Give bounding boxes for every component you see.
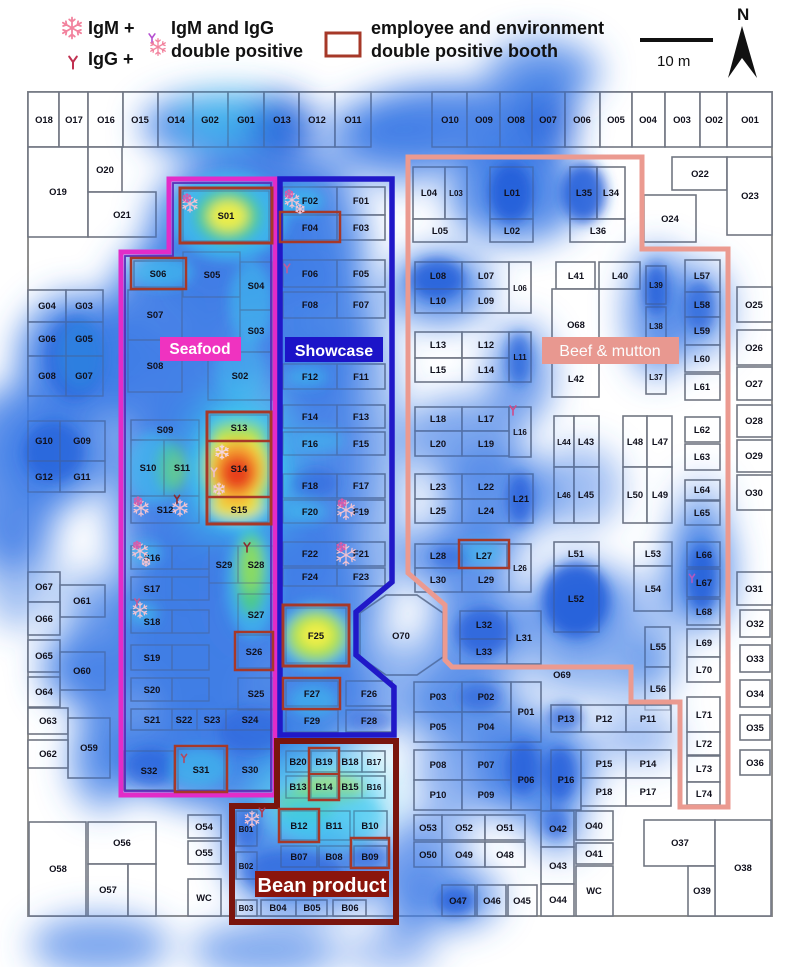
svg-text:WC: WC — [586, 885, 602, 896]
svg-text:O31: O31 — [745, 583, 763, 594]
svg-text:F26: F26 — [361, 688, 377, 699]
svg-text:L63: L63 — [694, 451, 710, 462]
svg-text:B08: B08 — [325, 851, 342, 862]
svg-text:L32: L32 — [476, 619, 492, 630]
svg-text:P03: P03 — [430, 691, 447, 702]
svg-text:L58: L58 — [694, 299, 710, 310]
svg-text:O12: O12 — [308, 114, 326, 125]
svg-text:L48: L48 — [627, 436, 643, 447]
svg-text:O35: O35 — [746, 722, 764, 733]
svg-text:L44: L44 — [557, 438, 571, 447]
svg-text:O60: O60 — [73, 665, 91, 676]
svg-text:double positive: double positive — [171, 41, 303, 61]
svg-text:L40: L40 — [612, 270, 628, 281]
svg-text:S02: S02 — [232, 370, 249, 381]
svg-text:10 m: 10 m — [657, 53, 690, 70]
svg-text:P16: P16 — [558, 774, 575, 785]
svg-text:S11: S11 — [174, 462, 190, 473]
svg-text:F01: F01 — [353, 195, 369, 206]
svg-text:S18: S18 — [144, 616, 161, 627]
svg-text:S13: S13 — [231, 422, 248, 433]
svg-text:S03: S03 — [248, 325, 265, 336]
svg-text:L56: L56 — [650, 683, 666, 694]
svg-text:B12: B12 — [290, 820, 307, 831]
svg-text:L30: L30 — [430, 574, 446, 585]
svg-text:O54: O54 — [195, 821, 214, 832]
svg-text:G10: G10 — [35, 435, 53, 446]
svg-text:L29: L29 — [478, 574, 494, 585]
svg-text:S21: S21 — [144, 714, 161, 725]
svg-text:L08: L08 — [430, 270, 446, 281]
svg-text:S25: S25 — [248, 688, 265, 699]
svg-text:O46: O46 — [483, 895, 501, 906]
svg-text:L73: L73 — [696, 763, 712, 774]
svg-text:L20: L20 — [430, 438, 446, 449]
svg-text:O20: O20 — [96, 164, 114, 175]
svg-text:L74: L74 — [696, 788, 713, 799]
svg-text:L27: L27 — [476, 550, 492, 561]
svg-text:L52: L52 — [568, 593, 584, 604]
svg-text:F24: F24 — [302, 571, 319, 582]
svg-text:L26: L26 — [513, 564, 527, 573]
svg-text:IgM +: IgM + — [88, 18, 135, 38]
svg-text:O32: O32 — [746, 618, 764, 629]
svg-text:F20: F20 — [302, 506, 318, 517]
svg-text:S28: S28 — [248, 559, 265, 570]
svg-text:L25: L25 — [430, 505, 446, 516]
svg-text:L31: L31 — [516, 632, 532, 643]
svg-text:O25: O25 — [745, 299, 763, 310]
svg-text:B19: B19 — [315, 756, 332, 767]
svg-text:B14: B14 — [315, 781, 333, 792]
svg-text:L69: L69 — [696, 637, 712, 648]
svg-text:O27: O27 — [745, 378, 763, 389]
svg-text:O41: O41 — [585, 848, 603, 859]
svg-text:O56: O56 — [113, 837, 131, 848]
svg-text:O70: O70 — [392, 630, 410, 641]
svg-text:L46: L46 — [557, 491, 571, 500]
svg-text:L09: L09 — [478, 295, 494, 306]
svg-text:B09: B09 — [361, 851, 378, 862]
svg-text:L34: L34 — [603, 187, 620, 198]
svg-text:P11: P11 — [640, 713, 656, 724]
svg-text:S01: S01 — [218, 210, 235, 221]
svg-text:O10: O10 — [441, 114, 459, 125]
svg-text:O08: O08 — [507, 114, 525, 125]
svg-text:O55: O55 — [195, 847, 213, 858]
svg-text:G02: G02 — [201, 114, 219, 125]
svg-text:O14: O14 — [167, 114, 186, 125]
svg-text:S06: S06 — [150, 268, 167, 279]
svg-text:S07: S07 — [147, 309, 164, 320]
svg-text:O26: O26 — [745, 342, 763, 353]
svg-text:P08: P08 — [430, 759, 447, 770]
svg-text:L43: L43 — [578, 436, 594, 447]
svg-text:L42: L42 — [568, 373, 584, 384]
svg-text:P15: P15 — [596, 758, 613, 769]
svg-text:B07: B07 — [290, 851, 307, 862]
svg-text:O44: O44 — [549, 894, 568, 905]
svg-text:F29: F29 — [304, 715, 320, 726]
svg-text:L10: L10 — [430, 295, 446, 306]
svg-text:L19: L19 — [478, 438, 494, 449]
svg-text:L24: L24 — [478, 505, 495, 516]
svg-text:P10: P10 — [430, 789, 447, 800]
svg-text:O36: O36 — [746, 757, 764, 768]
svg-text:F19: F19 — [353, 506, 369, 517]
svg-text:L38: L38 — [649, 322, 663, 331]
svg-text:F06: F06 — [302, 268, 318, 279]
svg-text:O66: O66 — [35, 613, 53, 624]
svg-text:P14: P14 — [640, 758, 657, 769]
svg-text:S04: S04 — [248, 280, 265, 291]
svg-text:L59: L59 — [694, 325, 710, 336]
svg-text:B16: B16 — [367, 783, 382, 792]
svg-text:G01: G01 — [237, 114, 255, 125]
svg-text:O40: O40 — [585, 820, 603, 831]
svg-text:L50: L50 — [627, 489, 643, 500]
svg-text:L37: L37 — [649, 373, 663, 382]
svg-text:L18: L18 — [430, 413, 446, 424]
svg-text:O50: O50 — [419, 849, 437, 860]
svg-text:F28: F28 — [361, 715, 377, 726]
svg-text:O06: O06 — [573, 114, 591, 125]
svg-text:Beef & mutton: Beef & mutton — [559, 343, 660, 360]
svg-text:O09: O09 — [475, 114, 493, 125]
svg-text:O02: O02 — [705, 114, 723, 125]
svg-text:S30: S30 — [242, 764, 259, 775]
svg-text:P01: P01 — [518, 706, 535, 717]
svg-text:P06: P06 — [518, 774, 535, 785]
svg-text:L03: L03 — [449, 189, 463, 198]
svg-text:B15: B15 — [341, 781, 358, 792]
svg-text:L21: L21 — [513, 493, 529, 504]
svg-text:S29: S29 — [216, 559, 233, 570]
svg-text:Seafood: Seafood — [169, 341, 230, 358]
svg-text:F15: F15 — [353, 438, 369, 449]
svg-text:B02: B02 — [239, 862, 254, 871]
svg-text:L67: L67 — [696, 577, 712, 588]
svg-text:L07: L07 — [478, 270, 494, 281]
svg-text:O67: O67 — [35, 581, 53, 592]
svg-text:L35: L35 — [576, 187, 592, 198]
svg-text:Bean product: Bean product — [258, 875, 387, 897]
svg-text:O21: O21 — [113, 209, 131, 220]
svg-text:B03: B03 — [239, 904, 254, 913]
svg-text:O01: O01 — [741, 114, 759, 125]
svg-text:L28: L28 — [430, 550, 446, 561]
svg-text:L14: L14 — [478, 364, 495, 375]
svg-text:O58: O58 — [49, 863, 67, 874]
svg-text:G05: G05 — [75, 333, 93, 344]
svg-text:L15: L15 — [430, 364, 446, 375]
svg-text:O04: O04 — [639, 114, 658, 125]
svg-text:F12: F12 — [302, 371, 318, 382]
svg-text:O34: O34 — [746, 688, 765, 699]
svg-text:F11: F11 — [353, 371, 369, 382]
svg-text:P09: P09 — [478, 789, 495, 800]
svg-text:L04: L04 — [421, 187, 438, 198]
svg-text:S23: S23 — [204, 714, 221, 725]
svg-text:O38: O38 — [734, 862, 752, 873]
svg-text:L36: L36 — [590, 225, 606, 236]
svg-text:S08: S08 — [147, 360, 164, 371]
svg-text:L60: L60 — [694, 353, 710, 364]
svg-text:L53: L53 — [645, 548, 661, 559]
svg-text:O03: O03 — [673, 114, 691, 125]
svg-text:O18: O18 — [35, 114, 53, 125]
svg-text:L57: L57 — [694, 270, 710, 281]
svg-text:L22: L22 — [478, 481, 494, 492]
svg-text:employee and environment: employee and environment — [371, 18, 604, 38]
svg-text:O28: O28 — [745, 415, 763, 426]
svg-text:G07: G07 — [75, 370, 93, 381]
svg-text:L66: L66 — [696, 549, 712, 560]
svg-text:O51: O51 — [496, 822, 514, 833]
svg-text:O65: O65 — [35, 650, 53, 661]
svg-text:B18: B18 — [341, 756, 358, 767]
svg-text:P12: P12 — [596, 713, 613, 724]
svg-text:L12: L12 — [478, 339, 494, 350]
svg-text:L13: L13 — [430, 339, 446, 350]
svg-text:IgG +: IgG + — [88, 49, 134, 69]
svg-text:L11: L11 — [513, 353, 527, 362]
svg-text:L33: L33 — [476, 646, 492, 657]
svg-text:L06: L06 — [513, 284, 527, 293]
svg-text:L70: L70 — [696, 664, 712, 675]
svg-text:Showcase: Showcase — [295, 343, 373, 360]
svg-text:F23: F23 — [353, 571, 369, 582]
svg-text:F08: F08 — [302, 299, 318, 310]
svg-text:B05: B05 — [303, 902, 320, 913]
svg-text:L23: L23 — [430, 481, 446, 492]
svg-text:O53: O53 — [419, 822, 437, 833]
svg-text:S09: S09 — [157, 424, 174, 435]
svg-text:L47: L47 — [652, 436, 668, 447]
svg-text:S27: S27 — [248, 609, 265, 620]
svg-text:O52: O52 — [455, 822, 473, 833]
svg-text:O24: O24 — [661, 213, 680, 224]
svg-text:P18: P18 — [596, 786, 613, 797]
svg-text:G08: G08 — [38, 370, 56, 381]
svg-text:O37: O37 — [671, 837, 689, 848]
svg-text:O61: O61 — [73, 595, 91, 606]
svg-text:G06: G06 — [38, 333, 56, 344]
svg-text:O33: O33 — [746, 653, 764, 664]
svg-text:G04: G04 — [38, 300, 57, 311]
svg-text:O47: O47 — [449, 895, 467, 906]
svg-text:G12: G12 — [35, 471, 53, 482]
svg-text:L65: L65 — [694, 507, 710, 518]
svg-text:S32: S32 — [141, 765, 158, 776]
svg-text:O17: O17 — [65, 114, 83, 125]
svg-text:S10: S10 — [140, 462, 157, 473]
svg-text:L05: L05 — [432, 225, 448, 236]
svg-text:F03: F03 — [353, 222, 369, 233]
svg-text:S24: S24 — [242, 714, 259, 725]
svg-text:F22: F22 — [302, 548, 318, 559]
svg-text:F16: F16 — [302, 438, 318, 449]
svg-text:L49: L49 — [652, 489, 668, 500]
svg-text:O45: O45 — [513, 895, 531, 906]
svg-text:O43: O43 — [549, 860, 567, 871]
svg-text:S19: S19 — [144, 652, 161, 663]
svg-text:P05: P05 — [430, 721, 447, 732]
svg-text:O30: O30 — [745, 487, 763, 498]
svg-text:G03: G03 — [75, 300, 93, 311]
svg-text:P07: P07 — [478, 759, 495, 770]
svg-text:O05: O05 — [607, 114, 625, 125]
svg-text:L02: L02 — [504, 225, 520, 236]
svg-text:L55: L55 — [650, 641, 666, 652]
svg-text:L54: L54 — [645, 583, 662, 594]
svg-text:B06: B06 — [341, 902, 358, 913]
svg-text:F05: F05 — [353, 268, 369, 279]
svg-text:IgM and IgG: IgM and IgG — [171, 18, 274, 38]
svg-text:L72: L72 — [696, 738, 712, 749]
svg-text:F18: F18 — [302, 480, 318, 491]
svg-text:S05: S05 — [204, 269, 221, 280]
svg-text:B17: B17 — [367, 758, 382, 767]
svg-text:L01: L01 — [504, 187, 520, 198]
svg-text:O69: O69 — [553, 669, 571, 680]
svg-text:O42: O42 — [549, 823, 567, 834]
svg-text:O68: O68 — [567, 319, 585, 330]
svg-text:F13: F13 — [353, 411, 369, 422]
svg-text:F25: F25 — [308, 630, 324, 641]
svg-text:F07: F07 — [353, 299, 369, 310]
svg-text:B13: B13 — [289, 781, 306, 792]
svg-text:S14: S14 — [231, 463, 248, 474]
svg-text:P13: P13 — [558, 713, 575, 724]
svg-text:F17: F17 — [353, 480, 369, 491]
svg-text:O11: O11 — [344, 114, 361, 125]
svg-text:F04: F04 — [302, 222, 319, 233]
svg-text:O22: O22 — [691, 168, 709, 179]
svg-text:WC: WC — [196, 892, 212, 903]
svg-text:S26: S26 — [246, 646, 263, 657]
svg-text:P02: P02 — [478, 691, 495, 702]
svg-text:O39: O39 — [693, 885, 711, 896]
svg-text:B04: B04 — [269, 902, 287, 913]
svg-text:L62: L62 — [694, 424, 710, 435]
svg-text:B20: B20 — [289, 756, 306, 767]
svg-text:O57: O57 — [99, 884, 117, 895]
svg-text:O19: O19 — [49, 186, 67, 197]
svg-text:B11: B11 — [326, 820, 343, 831]
svg-text:O62: O62 — [39, 748, 57, 759]
svg-text:F14: F14 — [302, 411, 319, 422]
svg-text:O15: O15 — [131, 114, 149, 125]
svg-text:F27: F27 — [304, 688, 320, 699]
svg-text:L45: L45 — [578, 489, 594, 500]
svg-text:L17: L17 — [478, 413, 494, 424]
svg-text:L51: L51 — [568, 548, 584, 559]
svg-text:N: N — [737, 5, 749, 24]
svg-text:L16: L16 — [513, 428, 527, 437]
svg-text:O29: O29 — [745, 450, 763, 461]
svg-text:G11: G11 — [73, 471, 90, 482]
svg-text:F02: F02 — [302, 195, 318, 206]
svg-text:S22: S22 — [176, 714, 193, 725]
svg-text:B10: B10 — [361, 820, 378, 831]
svg-text:O07: O07 — [539, 114, 557, 125]
svg-text:G09: G09 — [73, 435, 91, 446]
svg-text:L61: L61 — [694, 381, 710, 392]
svg-text:S31: S31 — [193, 764, 210, 775]
svg-text:S12: S12 — [157, 504, 174, 515]
svg-text:S17: S17 — [144, 583, 161, 594]
svg-text:O59: O59 — [80, 742, 98, 753]
svg-text:L64: L64 — [694, 484, 711, 495]
svg-text:L71: L71 — [696, 709, 712, 720]
svg-text:O63: O63 — [39, 715, 57, 726]
svg-text:L68: L68 — [696, 606, 712, 617]
svg-text:L41: L41 — [568, 270, 584, 281]
svg-text:O48: O48 — [496, 849, 514, 860]
svg-text:O49: O49 — [455, 849, 473, 860]
svg-text:O13: O13 — [273, 114, 291, 125]
svg-text:O23: O23 — [741, 190, 759, 201]
svg-text:double positive booth: double positive booth — [371, 41, 558, 61]
svg-text:S20: S20 — [144, 684, 161, 695]
svg-text:O64: O64 — [35, 686, 54, 697]
svg-text:O16: O16 — [97, 114, 115, 125]
svg-text:L39: L39 — [649, 281, 663, 290]
svg-text:P04: P04 — [478, 721, 495, 732]
svg-text:P17: P17 — [640, 786, 657, 797]
svg-text:S15: S15 — [231, 504, 248, 515]
